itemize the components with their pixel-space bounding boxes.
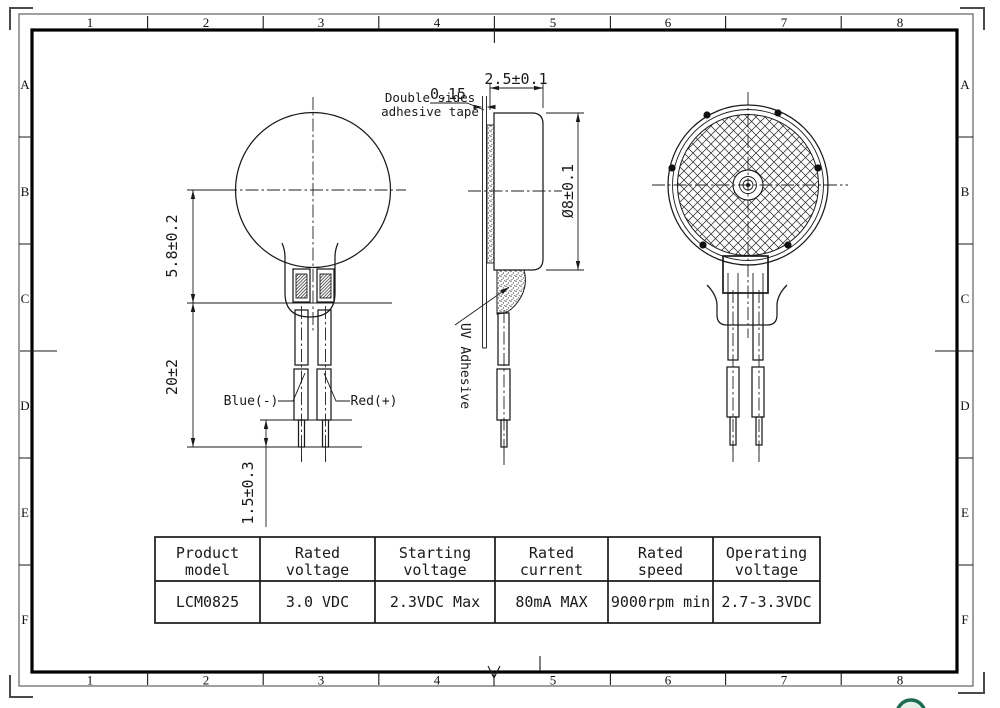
bracket-strip [483,96,487,348]
tape-note: Double sides adhesive tape [381,90,479,119]
table-cell-rated-voltage: 3.0 VDC [286,593,349,611]
zone-label: 8 [897,15,904,30]
table-header: voltage [403,561,466,579]
sheet-inner-edge [19,14,973,686]
table-header: voltage [286,561,349,579]
corner-mark-top-left [10,8,33,30]
wire-label-red: Red(+) [324,373,397,409]
zone-label: E [961,505,969,520]
blue-wire-label: Blue(-) [224,394,279,409]
motor-body-side [494,113,543,270]
zone-label: C [21,291,30,306]
zone-label: 2 [203,15,210,30]
uv-adhesive-label: UV Adhesive [457,323,472,409]
zone-label: B [21,184,30,199]
solder-pad-right [317,269,334,302]
bottom-centre-mark [488,666,500,686]
table-header: Rated [638,544,683,562]
dimension-tip-length: 1.5±0.3 [239,420,352,527]
table-header: Rated [529,544,574,562]
zone-label: 2 [203,673,210,688]
right-zone-ticks [935,137,973,565]
table-header: voltage [735,561,798,579]
zone-label: 3 [318,673,325,688]
drawing-sheet: 1 2 3 4 5 6 7 8 1 2 3 4 5 6 7 8 A B C D … [0,0,1000,708]
corner-mark-top-right [960,8,984,30]
table-header: Operating [726,544,807,562]
dimension-lead-length: 20±2 [163,303,362,447]
table-header: Product [176,544,239,562]
tape-note-line2: adhesive tape [381,104,479,119]
zone-label: 1 [87,15,94,30]
table-cell-starting-voltage: 2.3VDC Max [390,593,480,611]
spec-table: Product Rated Starting Rated Rated Opera… [155,537,820,623]
zone-label: 5 [550,673,557,688]
table-cell-rated-current: 80mA MAX [515,593,587,611]
dim-text-diameter: Ø8±0.1 [559,164,577,218]
zone-label: A [20,77,30,92]
zone-label: F [961,612,968,627]
zone-label: 4 [434,15,441,30]
zone-label: F [21,612,28,627]
terminal-plate-back [723,256,768,293]
dimension-thickness: 2.5±0.1 [484,70,547,110]
dim-text-lead-length: 20±2 [163,359,181,395]
tape-note-line1: Double sides [385,90,475,105]
lead-wire-side [497,310,510,465]
table-header: Starting [399,544,471,562]
table-outline [155,537,820,623]
table-header: speed [638,561,683,579]
zone-numbers-top: 1 2 3 4 5 6 7 8 [87,15,904,30]
zone-label: C [961,291,970,306]
adhesive-tape-strip [487,125,494,263]
side-view: 2.5±0.1 0.15 Ø8±0.1 Double sides adhesiv… [381,70,584,465]
drawing-canvas: 1 2 3 4 5 6 7 8 1 2 3 4 5 6 7 8 A B C D … [0,0,1000,708]
zone-label: B [961,184,970,199]
zone-label: A [960,77,970,92]
table-header: current [520,561,583,579]
lead-wire-back-right [752,290,764,462]
zone-label: E [21,505,29,520]
sheet-frame: 1 2 3 4 5 6 7 8 1 2 3 4 5 6 7 8 A B C D … [10,8,984,697]
dimension-body-height: 5.8±0.2 [163,190,392,303]
zone-label: 6 [665,673,672,688]
zone-label: 4 [434,673,441,688]
back-view [652,92,848,462]
corner-mark-bottom-right [958,672,984,693]
zone-label: 7 [781,15,788,30]
table-cell-rated-speed: 9000rpm min [611,593,710,611]
left-zone-ticks [19,137,57,565]
zone-label: 6 [665,15,672,30]
dim-text-body-height: 5.8±0.2 [163,214,181,277]
table-header: Rated [295,544,340,562]
table-cell-operating-voltage: 2.7-3.3VDC [721,593,811,611]
dim-text-tip-length: 1.5±0.3 [239,461,257,524]
logo-badge [897,700,925,708]
dim-text-thickness: 2.5±0.1 [484,70,547,88]
front-view: 5.8±0.2 20±2 1.5±0.3 Blue(-) Red(+) [163,97,406,527]
zone-letters-left: A B C D E F [20,77,30,627]
zone-label: 3 [318,15,325,30]
table-cell-model: LCM0825 [176,593,239,611]
zone-label: D [20,398,29,413]
zone-letters-right: A B C D E F [960,77,970,627]
lead-wire-left [294,306,308,462]
zone-label: 7 [781,673,788,688]
zone-label: D [960,398,969,413]
red-wire-label: Red(+) [351,394,398,409]
zone-label: 1 [87,673,94,688]
zone-label: 5 [550,15,557,30]
terminal-tab-back [707,285,787,325]
lead-wire-back-left [727,290,739,462]
solder-pad-left [293,269,310,302]
zone-label: 8 [897,673,904,688]
wire-label-blue: Blue(-) [224,373,305,409]
zone-numbers-bottom: 1 2 3 4 5 6 7 8 [87,673,904,688]
table-header: model [185,561,230,579]
dimension-diameter: Ø8±0.1 [546,113,584,270]
